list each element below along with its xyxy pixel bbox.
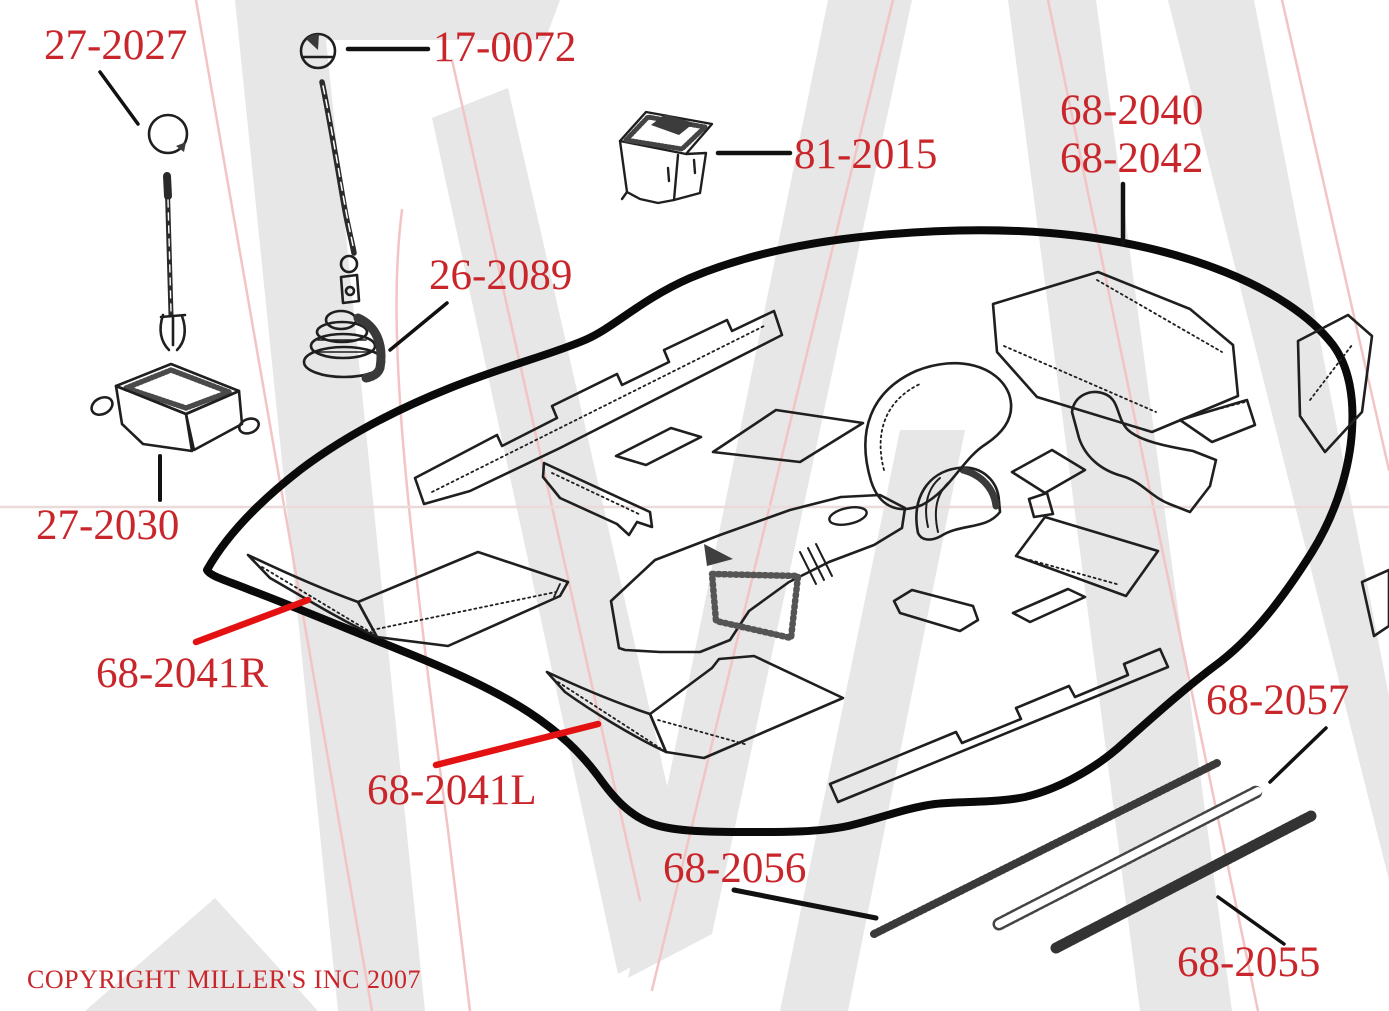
part-label-27-2027: 27-2027 (44, 24, 187, 67)
front-sill-carpet-strip (415, 311, 782, 504)
antenna-fork-plug (161, 315, 185, 350)
switch-box-part (620, 112, 712, 203)
part-label-68-2057: 68-2057 (1206, 679, 1349, 722)
leader-26-2089 (390, 303, 447, 350)
leader-68-2041R (196, 600, 308, 642)
leader-27-2027 (100, 72, 138, 124)
sill-trim-strips (874, 763, 1311, 948)
part-label-26-2089: 26-2089 (429, 254, 572, 297)
copyright-notice: COPYRIGHT MILLER'S INC 2007 (27, 965, 421, 995)
part-label-68-2041L: 68-2041L (367, 769, 537, 812)
carpet-piece (1013, 589, 1085, 622)
antenna-assembly-part (89, 115, 261, 451)
leader-68-2057 (1270, 728, 1326, 782)
part-label-68-2040: 68-2040 (1060, 89, 1203, 132)
part-label-68-2056: 68-2056 (663, 847, 806, 890)
part-label-17-0072: 17-0072 (433, 26, 576, 69)
part-label-68-2042: 68-2042 (1060, 137, 1203, 180)
antenna-base-unit (89, 364, 261, 451)
part-label-68-2041R: 68-2041R (96, 652, 268, 695)
parts-diagram-page: 27-2027 17-0072 81-2015 68-2040 68-2042 … (0, 0, 1389, 1011)
part-label-27-2030: 27-2030 (36, 504, 179, 547)
part-label-68-2055: 68-2055 (1177, 941, 1320, 984)
part-label-81-2015: 81-2015 (794, 133, 937, 176)
leader-68-2055 (1218, 897, 1284, 944)
carpet-piece (616, 428, 701, 465)
